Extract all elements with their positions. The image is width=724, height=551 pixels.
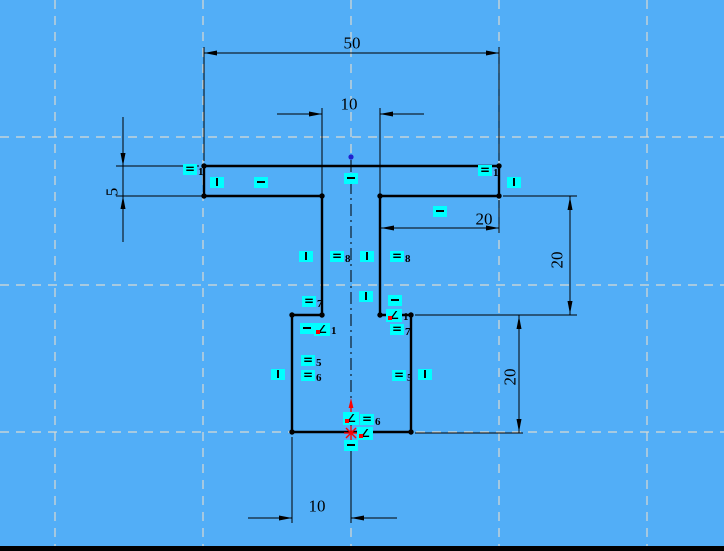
constraint-number: 1 — [403, 312, 409, 323]
dimension-flange-left-lines[interactable] — [116, 117, 202, 242]
equal-constraint-icon: = — [301, 355, 315, 366]
constraint-number: 7 — [317, 299, 323, 310]
vertical-constraint-icon — [507, 177, 521, 188]
constraint-angle[interactable]: ∠1 — [314, 323, 337, 336]
constraint-vertical[interactable] — [507, 177, 521, 188]
dimension-flange-left[interactable]: 5 — [104, 188, 121, 197]
dimension-flange-right[interactable]: 20 — [476, 211, 493, 228]
constraint-vertical[interactable] — [299, 251, 313, 262]
constraint-number: 8 — [345, 254, 351, 265]
horizontal-constraint-icon — [433, 206, 447, 217]
constraint-number: 1 — [493, 168, 499, 179]
angle-constraint-icon: ∠ — [386, 309, 402, 322]
constraint-number: 5 — [407, 373, 413, 384]
constraint-vertical[interactable] — [210, 177, 224, 188]
dimension-stem-upper[interactable]: 20 — [549, 252, 566, 269]
bottom-edge-bar — [0, 546, 724, 551]
constraint-equal[interactable]: =5 — [301, 355, 322, 366]
constraint-number: 7 — [405, 327, 411, 338]
equal-constraint-icon: = — [478, 165, 492, 176]
sketch-drawing — [0, 0, 724, 551]
constraint-equal[interactable]: =6 — [360, 414, 381, 425]
constraint-number: 6 — [375, 417, 381, 428]
vertical-constraint-icon — [418, 369, 432, 380]
constraint-angle[interactable]: ∠ — [357, 427, 373, 440]
horizontal-constraint-icon — [254, 177, 268, 188]
equal-constraint-icon: = — [302, 296, 316, 307]
constraint-equal[interactable]: =8 — [390, 251, 411, 262]
constraint-horizontal[interactable] — [388, 295, 402, 306]
constraint-vertical[interactable] — [359, 291, 373, 302]
angle-constraint-icon: ∠ — [314, 323, 330, 336]
constraint-vertical[interactable] — [360, 251, 374, 262]
equal-constraint-icon: = — [390, 324, 404, 335]
constraint-vertical[interactable] — [418, 369, 432, 380]
constraint-equal[interactable]: =7 — [302, 296, 323, 307]
vertical-constraint-icon — [299, 251, 313, 262]
constraint-number: 1 — [331, 326, 337, 337]
constraint-vertical[interactable] — [271, 369, 285, 380]
cad-canvas[interactable]: 50 10 5 20 20 20 10 =1=1=8=8=7∠1∠1=7=5=6… — [0, 0, 724, 551]
angle-constraint-icon: ∠ — [357, 427, 373, 440]
equal-constraint-icon: = — [183, 164, 197, 175]
vertical-constraint-icon — [360, 251, 374, 262]
equal-constraint-icon: = — [330, 251, 344, 262]
grid — [0, 0, 724, 551]
constraint-equal[interactable]: =8 — [330, 251, 351, 262]
fixed-point-marker[interactable] — [344, 426, 358, 440]
constraint-equal[interactable]: =1 — [183, 164, 204, 175]
constraint-number: 1 — [198, 167, 204, 178]
equal-constraint-icon: = — [360, 414, 374, 425]
equal-constraint-icon: = — [390, 251, 404, 262]
dimension-slot-top[interactable]: 10 — [341, 96, 358, 113]
constraint-number: 5 — [316, 358, 322, 369]
equal-constraint-icon: = — [301, 370, 315, 381]
horizontal-constraint-icon — [344, 440, 358, 451]
equal-constraint-icon: = — [392, 370, 406, 381]
dimension-width-top[interactable]: 50 — [344, 35, 361, 52]
constraint-number: 6 — [316, 373, 322, 384]
constraint-equal[interactable]: =7 — [390, 324, 411, 335]
constraint-angle[interactable]: ∠1 — [386, 309, 409, 322]
constraint-horizontal[interactable] — [433, 206, 447, 217]
dimension-base-right[interactable]: 20 — [502, 369, 519, 386]
vertical-constraint-icon — [359, 291, 373, 302]
horizontal-constraint-icon — [388, 295, 402, 306]
vertical-constraint-icon — [210, 177, 224, 188]
constraint-equal[interactable]: =5 — [392, 370, 413, 381]
constraint-horizontal[interactable] — [300, 323, 314, 334]
horizontal-constraint-icon — [344, 173, 358, 184]
vertical-constraint-icon — [271, 369, 285, 380]
constraint-angle[interactable]: ∠ — [343, 412, 359, 425]
angle-constraint-icon: ∠ — [343, 412, 359, 425]
constraint-horizontal[interactable] — [254, 177, 268, 188]
constraint-number: 8 — [405, 254, 411, 265]
origin-point[interactable] — [348, 154, 353, 159]
horizontal-constraint-icon — [300, 323, 314, 334]
dimension-base-bottom[interactable]: 10 — [309, 498, 326, 515]
constraint-horizontal[interactable] — [344, 440, 358, 451]
constraint-equal[interactable]: =6 — [301, 370, 322, 381]
constraint-equal[interactable]: =1 — [478, 165, 499, 176]
constraint-horizontal[interactable] — [344, 173, 358, 184]
